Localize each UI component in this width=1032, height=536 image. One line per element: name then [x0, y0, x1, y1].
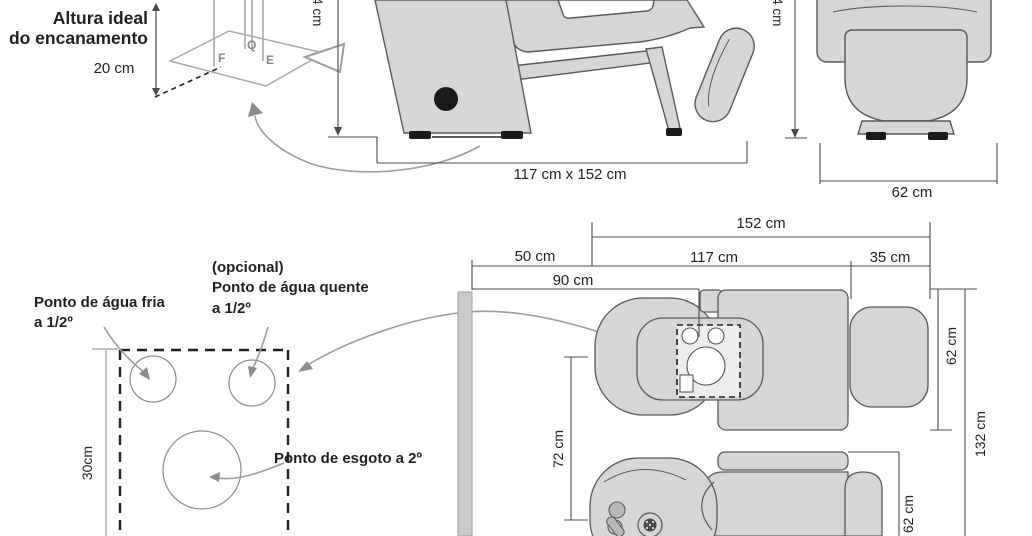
utility-hot-hole — [708, 328, 724, 344]
diagram-canvas — [0, 0, 1032, 536]
plan-total-width-dim: 132 cm — [972, 399, 988, 469]
foot-right — [928, 132, 948, 140]
footrest-lower — [845, 472, 882, 536]
box-foot-right — [501, 131, 523, 139]
cold-water-point — [130, 356, 176, 402]
leg-foot — [666, 128, 682, 136]
utility-cold-hole — [682, 328, 698, 344]
plan-wall-to-point-dim: 90 cm — [543, 272, 603, 289]
iso-plumbing-diagram — [152, 0, 324, 97]
plan-chair-upper — [595, 290, 928, 430]
pipe-label-f: F — [218, 52, 225, 66]
plan-between-units-dim: 72 cm — [550, 419, 566, 479]
title-line-1: Altura ideal — [6, 8, 148, 28]
front-height-dim: 4 cm — [769, 0, 785, 32]
pipe-label-q: Q — [247, 39, 256, 53]
footprint-dim: 117 cm x 152 cm — [505, 166, 635, 183]
front-width-dim: 62 cm — [880, 184, 944, 201]
plan-chair-length-dim: 117 cm — [679, 249, 749, 266]
control-knob — [609, 502, 625, 518]
seat-front — [845, 30, 967, 121]
box-depth-dim: 30cm — [79, 433, 95, 493]
utility-outlet — [680, 375, 693, 392]
drain-point — [163, 431, 241, 509]
chair-side-view — [375, 0, 760, 139]
cold-water-label: Ponto de água fria — [34, 294, 165, 311]
drain-label: Ponto de esgoto a 2º — [274, 450, 422, 467]
floor-point-layout — [92, 327, 288, 536]
dim-arrow-up — [152, 3, 160, 11]
backrest-bar — [718, 452, 848, 470]
plan-chair-lower — [590, 452, 882, 536]
front-view-dimensions — [820, 143, 997, 184]
plan-footrest-length-dim: 35 cm — [860, 249, 920, 266]
plan-unit-width-dim: 62 cm — [900, 484, 916, 536]
plan-chair-width-dim: 62 cm — [943, 316, 959, 376]
chair-front-view — [817, 0, 991, 140]
backrest-box — [375, 0, 531, 133]
chair-leg — [646, 47, 680, 131]
footrest-pad — [690, 23, 760, 127]
title-line-2: do encanamento — [6, 28, 148, 48]
seat-lower — [705, 472, 848, 536]
wall — [458, 292, 472, 536]
cold-water-spec: a 1/2º — [34, 314, 73, 331]
optional-note: (opcional) — [212, 259, 284, 276]
box-foot-left — [409, 131, 431, 139]
foot-left — [866, 132, 886, 140]
plumbing-height-value: 20 cm — [88, 60, 140, 77]
footrest-top — [850, 307, 928, 407]
hot-water-spec: a 1/2º — [212, 300, 251, 317]
hot-water-label: Ponto de água quente — [212, 279, 369, 296]
installation-diagram-page: Altura ideal do encanamento 20 cm F Q E … — [0, 0, 1032, 536]
plan-wall-clearance-dim: 50 cm — [505, 248, 565, 265]
seat-arm — [512, 50, 658, 80]
arrowhead-icon — [248, 102, 263, 117]
cable-hole — [434, 87, 458, 111]
side-height-dim: 4 cm — [309, 0, 325, 32]
pipe-label-e: E — [266, 54, 274, 68]
plumbing-height-title: Altura ideal do encanamento — [6, 8, 148, 48]
plan-total-length-dim: 152 cm — [726, 215, 796, 232]
